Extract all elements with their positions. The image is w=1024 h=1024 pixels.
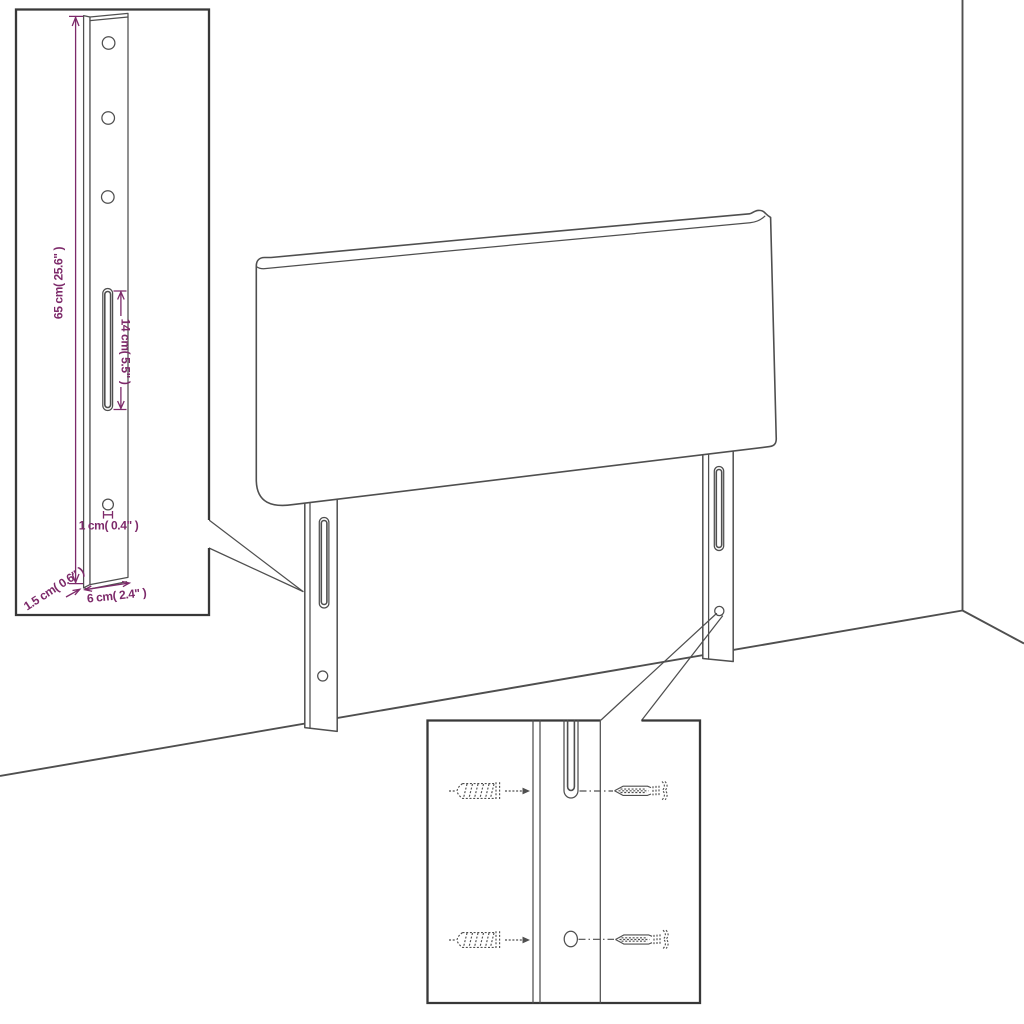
dim-label-slot-length: 14 cm( 5.5" ) (118, 319, 132, 385)
dim-label-hole: 1 cm( 0.4" ) (79, 519, 139, 533)
dim-label-leg-height: 65 cm( 25.6" ) (52, 247, 66, 320)
inset-leg-detail: 65 cm( 25.6" ) 14 cm( 5.5" ) 1 cm( 0.4" … (16, 10, 209, 616)
callout-line-right-outer (601, 614, 717, 721)
callout-line-left-upper (209, 520, 303, 592)
callout-wedge-left (209, 520, 303, 592)
callout-line-left-lower (209, 548, 303, 592)
diagram-canvas: 65 cm( 25.6" ) 14 cm( 5.5" ) 1 cm( 0.4" … (0, 0, 1024, 1024)
left-leg (305, 498, 337, 731)
headboard-assembly-diagram: 65 cm( 25.6" ) 14 cm( 5.5" ) 1 cm( 0.4" … (0, 0, 1024, 1024)
floor-line-right (963, 611, 1024, 644)
right-leg-body (703, 448, 733, 662)
headboard-panel (256, 210, 776, 505)
callout-line-right-inner (642, 616, 723, 721)
right-leg (703, 448, 733, 662)
headboard-panel-face (256, 210, 776, 505)
inset-mounting-detail (428, 721, 701, 1004)
bracket-side-face (84, 16, 90, 588)
